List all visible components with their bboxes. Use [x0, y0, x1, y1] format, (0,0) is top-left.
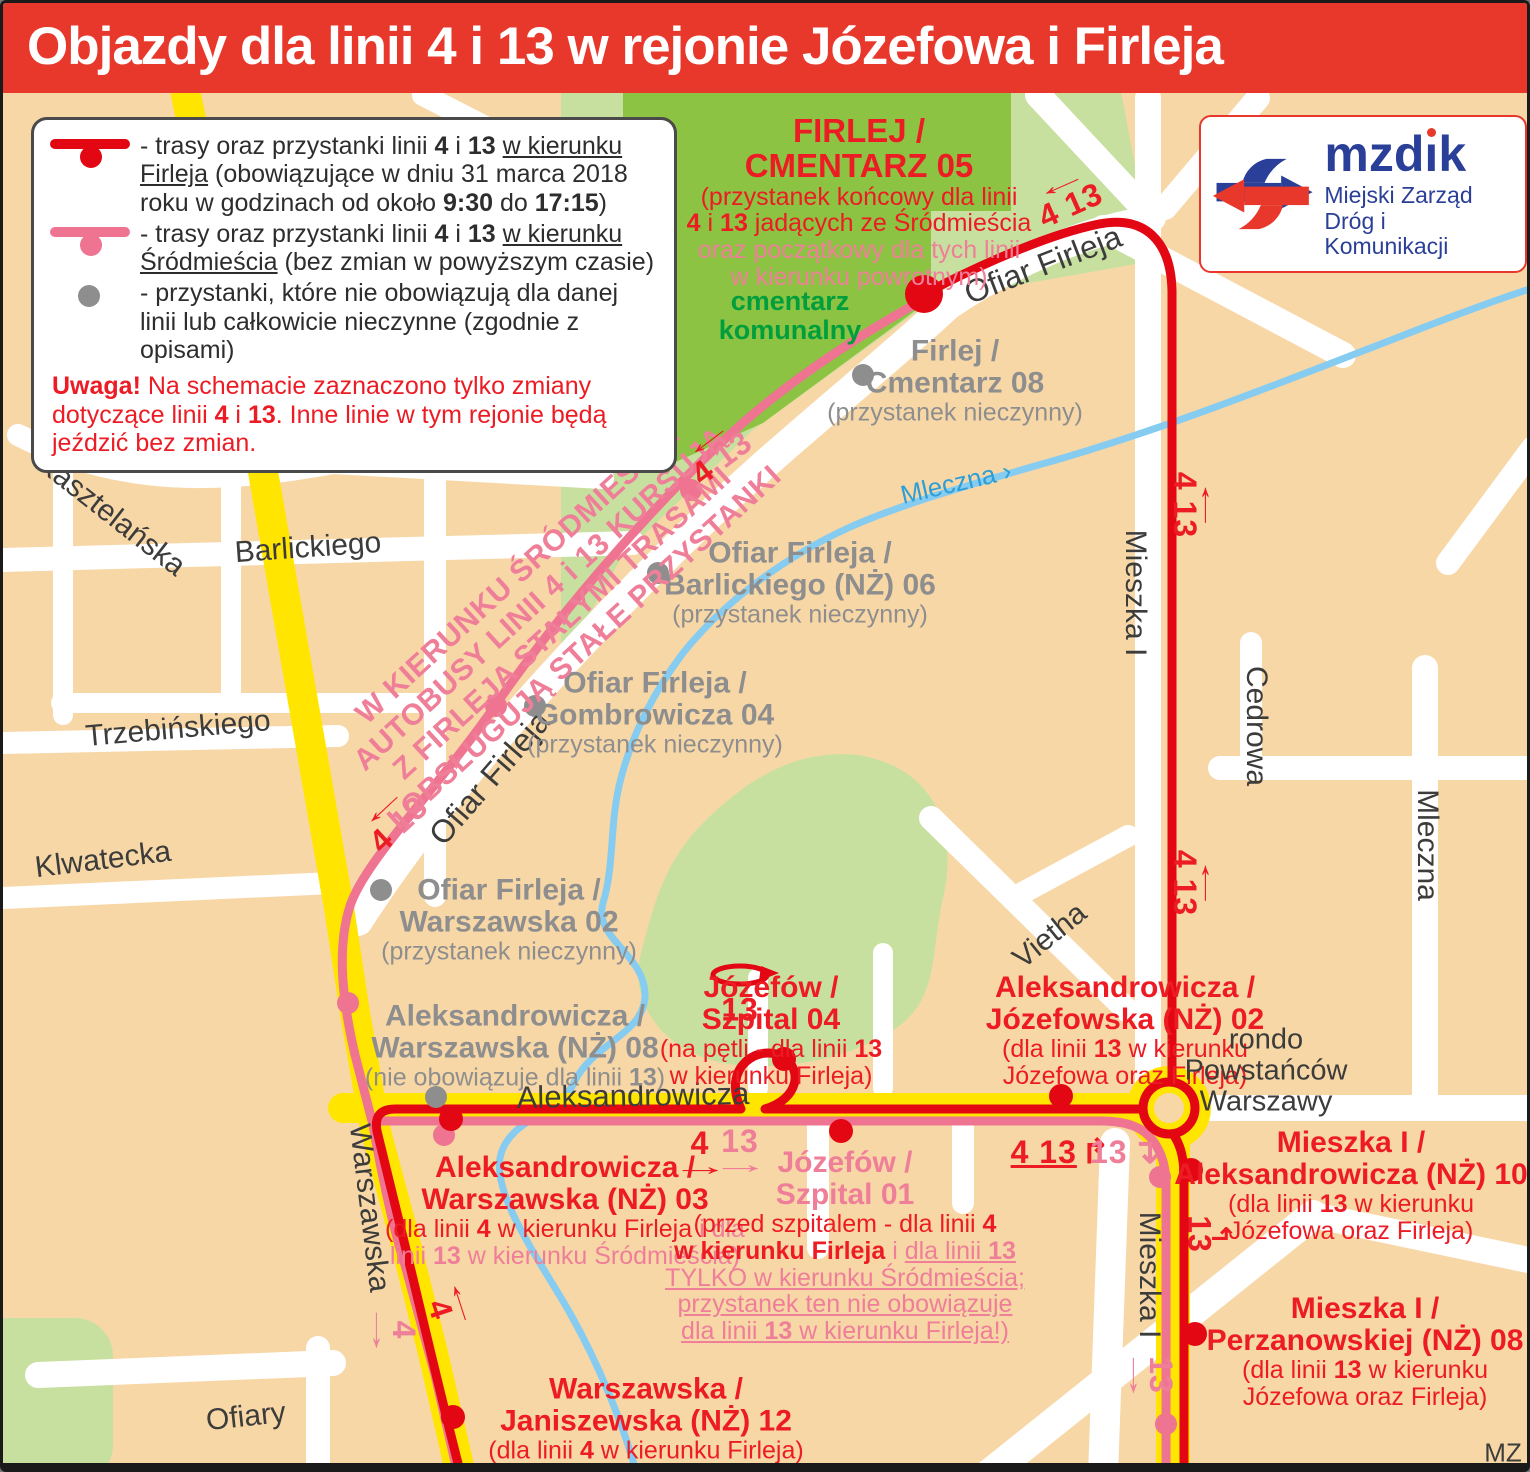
text-seg: Uwaga! [52, 372, 141, 400]
text-seg: i [448, 220, 467, 248]
logo-wordmark: mzdık [1324, 129, 1515, 179]
street-mieszka-west [1103, 1143, 1115, 1472]
text-seg [496, 132, 503, 160]
text-seg: 4 [435, 132, 449, 160]
text-seg [496, 220, 503, 248]
red-stop-dot [829, 1119, 853, 1143]
street-trzebinskiego [3, 736, 338, 743]
logo-letter: z [1369, 126, 1394, 182]
street-barlickiego [3, 543, 633, 560]
text-seg: - trasy oraz przystanki linii [140, 132, 435, 160]
legend-items: - trasy oraz przystanki linii 4 i 13 w k… [48, 132, 658, 364]
pink-stop-dot [680, 479, 702, 501]
red-stop-dot [1049, 1084, 1073, 1108]
red-stop-dot [439, 1107, 463, 1131]
text-seg: ) [599, 189, 607, 217]
red-stop-dot [441, 1405, 465, 1429]
legend-item: - trasy oraz przystanki linii 4 i 13 w k… [48, 220, 658, 277]
header-bar: Objazdy dla linii 4 i 13 w rejonie Józef… [3, 3, 1527, 93]
red-stop-dot [772, 1047, 796, 1071]
line-red-icon [48, 136, 140, 172]
pink-stop-dot [337, 992, 359, 1014]
red-stop-dot [1183, 1322, 1207, 1346]
text-seg: 9:30 [443, 189, 493, 217]
logo-letter: m [1324, 126, 1368, 182]
text-seg: 4 [435, 220, 449, 248]
legend-dot [78, 285, 100, 307]
mzdik-logo-icon [1211, 144, 1314, 244]
text-seg: i [448, 132, 467, 160]
logo-letter: d [1394, 126, 1425, 182]
text-seg: 13 [468, 220, 496, 248]
legend-box: - trasy oraz przystanki linii 4 i 13 w k… [31, 117, 677, 473]
logo-letter: k [1438, 126, 1466, 182]
closed-stop-dot [647, 562, 669, 584]
logo-text: mzdık Miejski Zarząd Dróg i Komunikacji [1324, 129, 1515, 260]
logo-subtitle-line2: Dróg i Komunikacji [1324, 208, 1515, 260]
logo-subtitle-line1: Miejski Zarząd [1324, 182, 1515, 208]
rondo-center [1154, 1093, 1184, 1123]
legend-item-text: - trasy oraz przystanki linii 4 i 13 w k… [140, 132, 658, 217]
green-corner [3, 1318, 113, 1472]
text-seg: (bez zmian w powyższym czasie) [278, 248, 654, 276]
text-seg: - przystanki, które nie obowiązują dla d… [140, 279, 618, 364]
legend-item-text: - trasy oraz przystanki linii 4 i 13 w k… [140, 220, 658, 277]
terminus-dot [905, 275, 943, 313]
closed-stop-dot [524, 695, 546, 717]
legend-note: Uwaga! Na schemacie zaznaczono tylko zmi… [52, 372, 658, 458]
pink-stop-dot [1149, 1166, 1171, 1188]
logo-letter-i: ı [1424, 129, 1438, 179]
red-stop-dot [1179, 1158, 1203, 1182]
legend-dot [80, 234, 102, 256]
logo-i-dot [1427, 128, 1436, 137]
page-title: Objazdy dla linii 4 i 13 w rejonie Józef… [3, 3, 1527, 91]
text-seg: i [228, 401, 247, 429]
dot-gray-icon [48, 283, 140, 319]
text-seg: 4 [215, 401, 229, 429]
mzdik-logo: mzdık Miejski Zarząd Dróg i Komunikacji [1199, 115, 1527, 273]
closed-stop-dot [425, 1086, 447, 1108]
pink-stop-dot [485, 695, 507, 717]
legend-item: - przystanki, które nie obowiązują dla d… [48, 279, 658, 364]
detour-map-poster: Objazdy dla linii 4 i 13 w rejonie Józef… [0, 0, 1530, 1472]
logo-subtitle: Miejski Zarząd Dróg i Komunikacji [1324, 182, 1515, 260]
text-seg: 13 [248, 401, 276, 429]
closed-stop-dot [852, 364, 874, 386]
text-seg: 17:15 [535, 189, 599, 217]
legend-item: - trasy oraz przystanki linii 4 i 13 w k… [48, 132, 658, 217]
closed-stop-dot [370, 879, 392, 901]
text-seg: 13 [468, 132, 496, 160]
text-seg: do [493, 189, 535, 217]
line-pink-icon [48, 224, 140, 260]
street-klwatecka [3, 883, 333, 898]
text-seg: - trasy oraz przystanki linii [140, 220, 435, 248]
street-ofiary [38, 1363, 333, 1375]
pink-stop-dot [1155, 1413, 1177, 1435]
legend-dot [80, 146, 102, 168]
legend-item-text: - przystanki, które nie obowiązują dla d… [140, 279, 658, 364]
